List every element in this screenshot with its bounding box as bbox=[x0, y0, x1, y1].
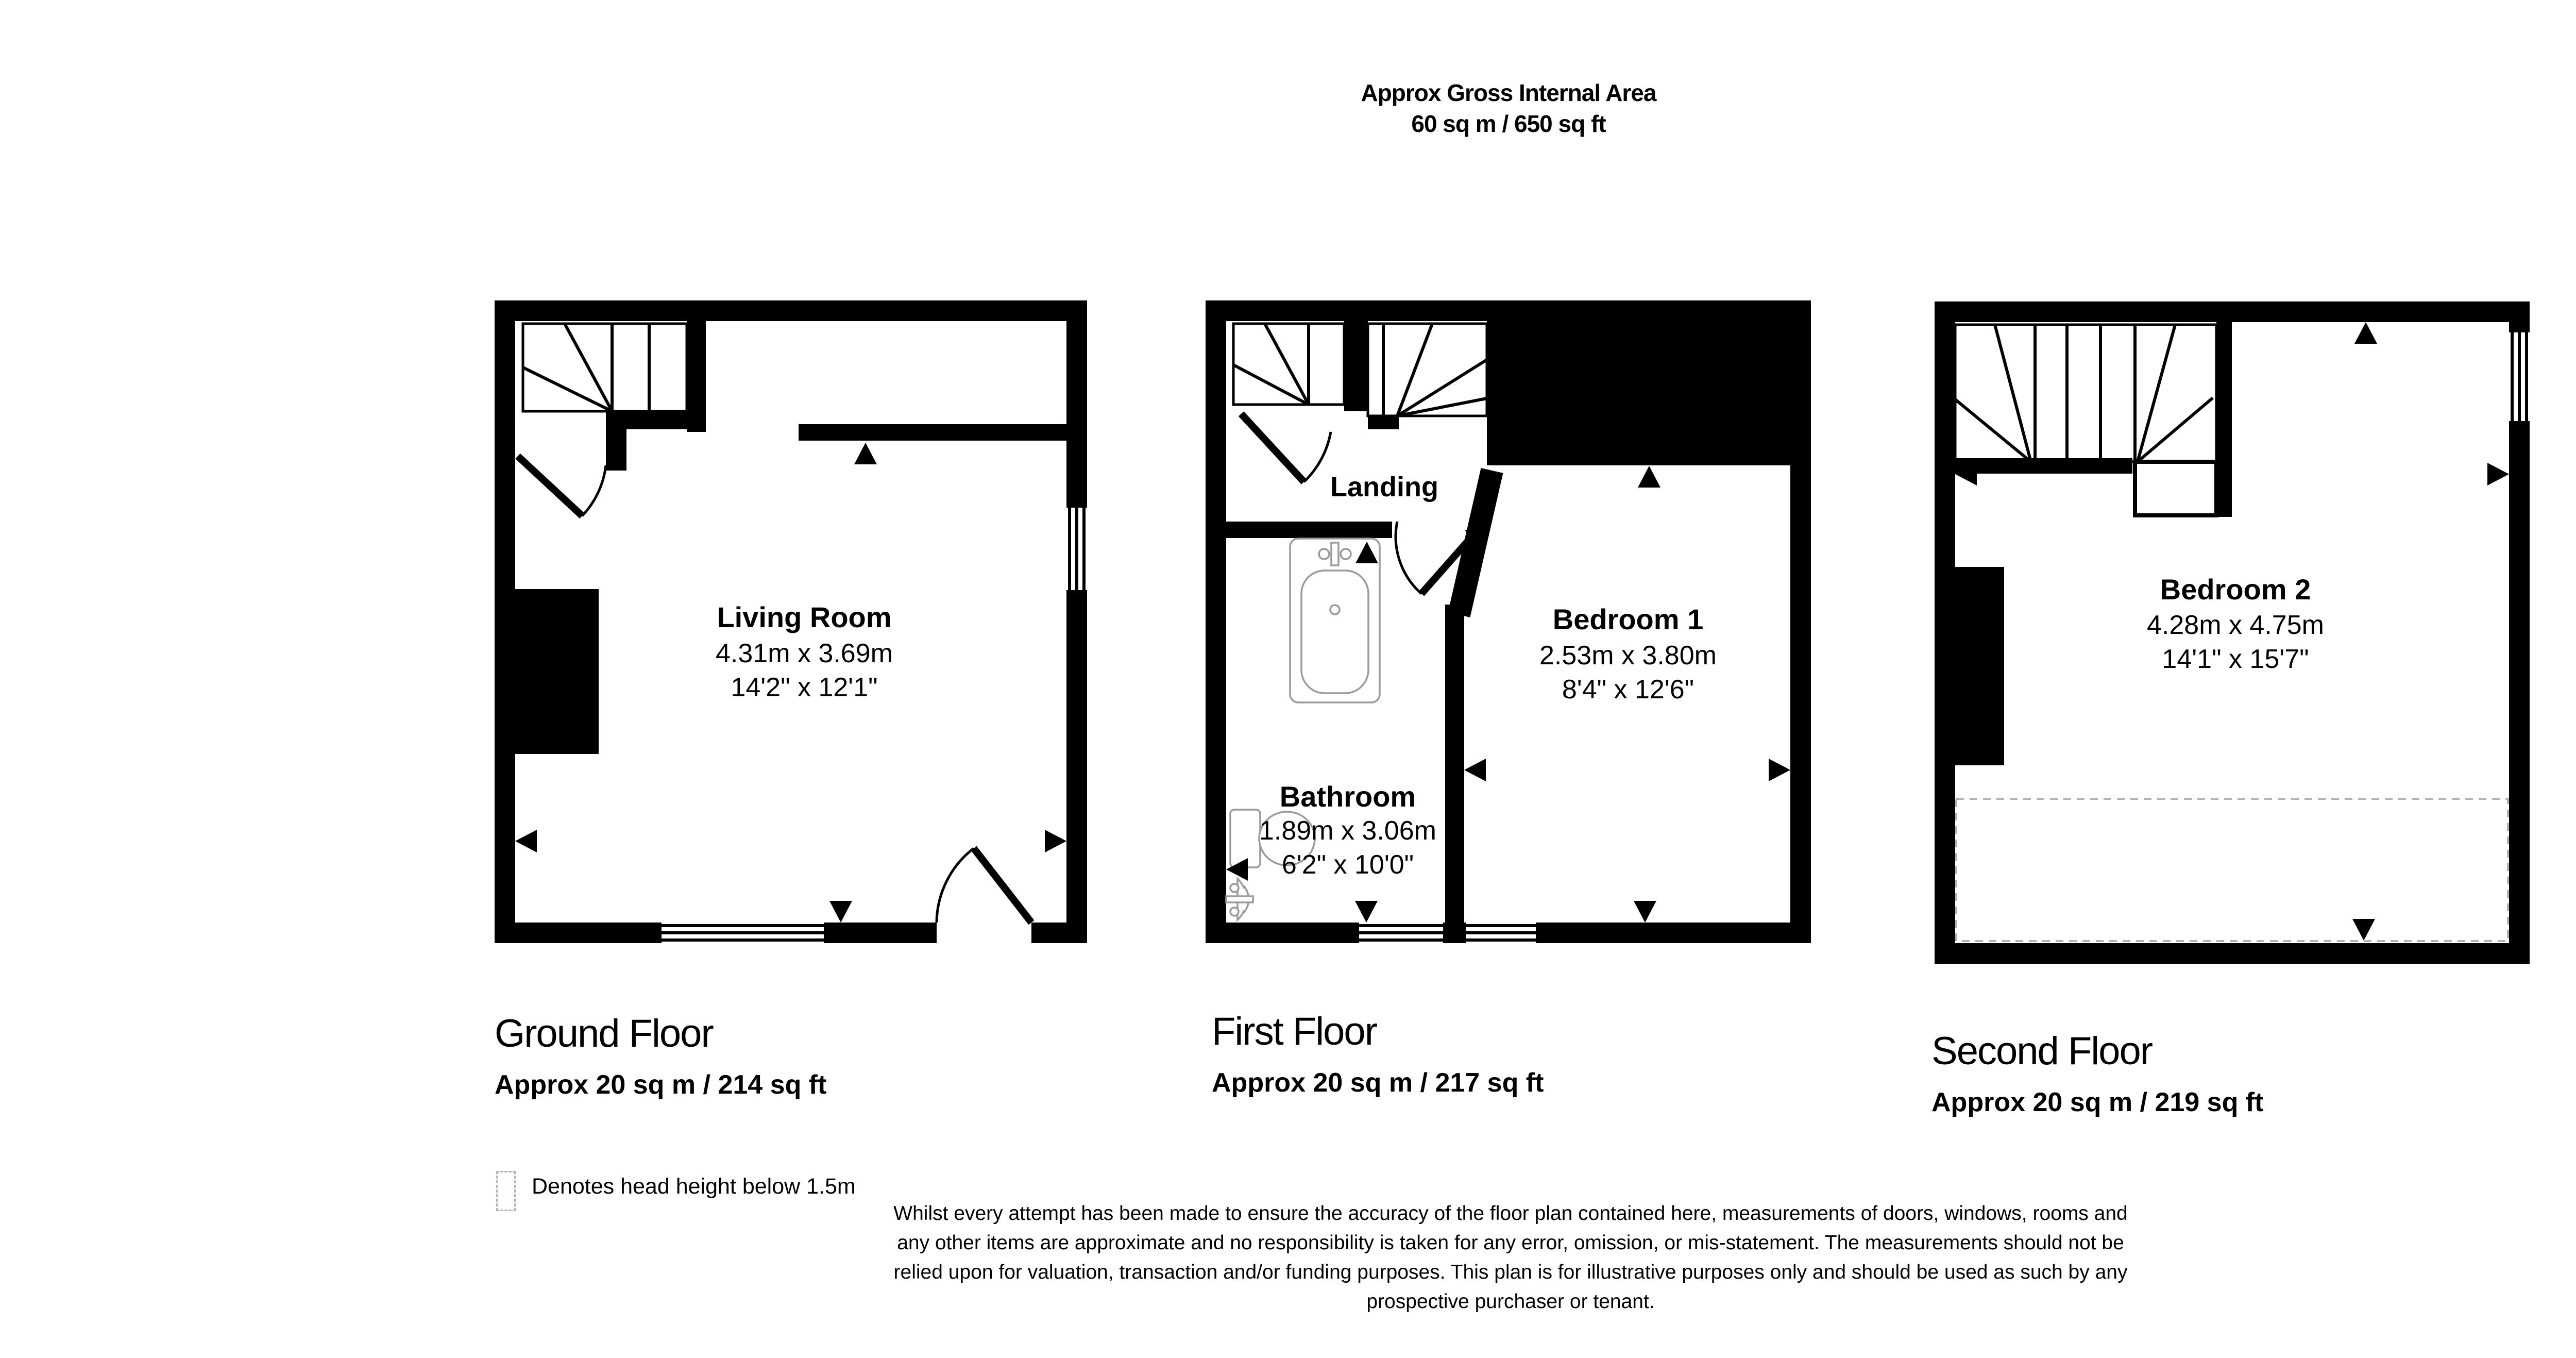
chimney-breast bbox=[1955, 567, 2004, 765]
ground-floor-plan: Living Room 4.31m x 3.69m 14'2" x 12'1" bbox=[495, 300, 1087, 943]
bottom-window bbox=[662, 923, 824, 943]
room-imperial: 14'2" x 12'1" bbox=[731, 673, 877, 702]
interior-wall bbox=[799, 424, 1066, 441]
arrow-up-icon bbox=[854, 443, 877, 464]
disclaimer-line-2: any other items are approximate and no r… bbox=[748, 1228, 2273, 1258]
head-height-region bbox=[1956, 799, 2508, 941]
floor-area: Approx 20 sq m / 219 sq ft bbox=[1931, 1087, 2263, 1118]
divider-wall bbox=[1445, 605, 1464, 923]
head-height-legend-swatch bbox=[496, 1171, 516, 1211]
floor-plan-page: { "title": { "line1": "Approx Gross Inte… bbox=[0, 0, 2576, 1358]
bedroom-2-label: Bedroom 2 4.28m x 4.75m 14'1" x 15'7" bbox=[2147, 573, 2324, 674]
second-floor-plan: Bedroom 2 4.28m x 4.75m 14'1" x 15'7" bbox=[1935, 301, 2530, 964]
stair-landing-box bbox=[2135, 462, 2216, 515]
landing-label: Landing bbox=[1330, 472, 1438, 502]
room-name: Bedroom 2 bbox=[2160, 573, 2311, 606]
landing-door bbox=[1241, 414, 1331, 482]
room-name: Living Room bbox=[717, 601, 891, 633]
floor-name: First Floor bbox=[1212, 1009, 1544, 1054]
room-metric: 4.31m x 3.69m bbox=[716, 639, 893, 668]
room-imperial: 14'1" x 15'7" bbox=[2162, 644, 2309, 674]
second-floor-stairs bbox=[1955, 325, 2216, 515]
bedroom-1-label: Bedroom 1 2.53m x 3.80m 8'4" x 12'6" bbox=[1539, 603, 1717, 705]
arrow-right-icon bbox=[2487, 463, 2509, 485]
room-metric: 2.53m x 3.80m bbox=[1539, 641, 1717, 670]
stair-door bbox=[518, 456, 606, 516]
room-name: Landing bbox=[1330, 472, 1438, 502]
arrow-left-icon bbox=[515, 830, 537, 852]
room-metric: 1.89m x 3.06m bbox=[1259, 816, 1436, 846]
title-line-2: 60 sq m / 650 sq ft bbox=[1122, 108, 1895, 139]
floor-area: Approx 20 sq m / 214 sq ft bbox=[495, 1069, 826, 1100]
bathroom-top-wall bbox=[1226, 522, 1392, 538]
floor-name: Ground Floor bbox=[495, 1011, 826, 1056]
first-floor-caption: First Floor Approx 20 sq m / 217 sq ft bbox=[1212, 1009, 1544, 1098]
top-right-solid-band bbox=[1487, 321, 1790, 465]
room-name: Bathroom bbox=[1280, 780, 1416, 813]
disclaimer: Whilst every attempt has been made to en… bbox=[748, 1199, 2273, 1316]
room-imperial: 8'4" x 12'6" bbox=[1562, 675, 1694, 705]
disclaimer-line-4: prospective purchaser or tenant. bbox=[748, 1287, 2273, 1316]
floor-area: Approx 20 sq m / 217 sq ft bbox=[1212, 1067, 1544, 1098]
room-metric: 4.28m x 4.75m bbox=[2147, 610, 2324, 640]
chimney-breast bbox=[515, 589, 599, 754]
first-floor-plan: Landing Bedroom 1 2.53m x 3.80m 8'4" x 1… bbox=[1206, 300, 1811, 943]
stair-right-wall bbox=[2216, 322, 2232, 517]
arrow-down-icon bbox=[1634, 901, 1656, 923]
room-name: Bedroom 1 bbox=[1553, 603, 1704, 635]
right-window bbox=[2509, 332, 2530, 421]
head-height-legend-text: Denotes head height below 1.5m bbox=[532, 1174, 856, 1199]
arrow-down-icon bbox=[1355, 901, 1378, 923]
living-room-label: Living Room 4.31m x 3.69m 14'2" x 12'1" bbox=[716, 601, 893, 702]
disclaimer-line-1: Whilst every attempt has been made to en… bbox=[748, 1199, 2273, 1228]
arrow-right-icon bbox=[1045, 830, 1066, 852]
disclaimer-line-3: relied upon for valuation, transaction a… bbox=[748, 1258, 2273, 1287]
arrow-right-icon bbox=[1769, 759, 1790, 781]
floor-name: Second Floor bbox=[1931, 1029, 2263, 1074]
bathroom-label: Bathroom 1.89m x 3.06m 6'2" x 10'0" bbox=[1259, 780, 1436, 880]
ground-floor-stairs bbox=[523, 324, 687, 411]
ground-floor-caption: Ground Floor Approx 20 sq m / 214 sq ft bbox=[495, 1011, 826, 1100]
arrow-down-icon bbox=[829, 901, 852, 923]
entrance-door bbox=[937, 848, 1031, 943]
arrow-left-icon bbox=[1464, 759, 1486, 781]
room-imperial: 6'2" x 10'0" bbox=[1282, 850, 1414, 880]
arrow-up-icon bbox=[2354, 322, 2377, 344]
right-window bbox=[1066, 508, 1087, 590]
arrow-down-icon bbox=[2352, 919, 2375, 941]
second-floor-caption: Second Floor Approx 20 sq m / 219 sq ft bbox=[1931, 1029, 2263, 1118]
arrow-up-icon bbox=[1638, 466, 1660, 488]
sink bbox=[1226, 879, 1253, 920]
title-line-1: Approx Gross Internal Area bbox=[1122, 77, 1895, 108]
gross-internal-area-title: Approx Gross Internal Area 60 sq m / 650… bbox=[1122, 77, 1895, 139]
